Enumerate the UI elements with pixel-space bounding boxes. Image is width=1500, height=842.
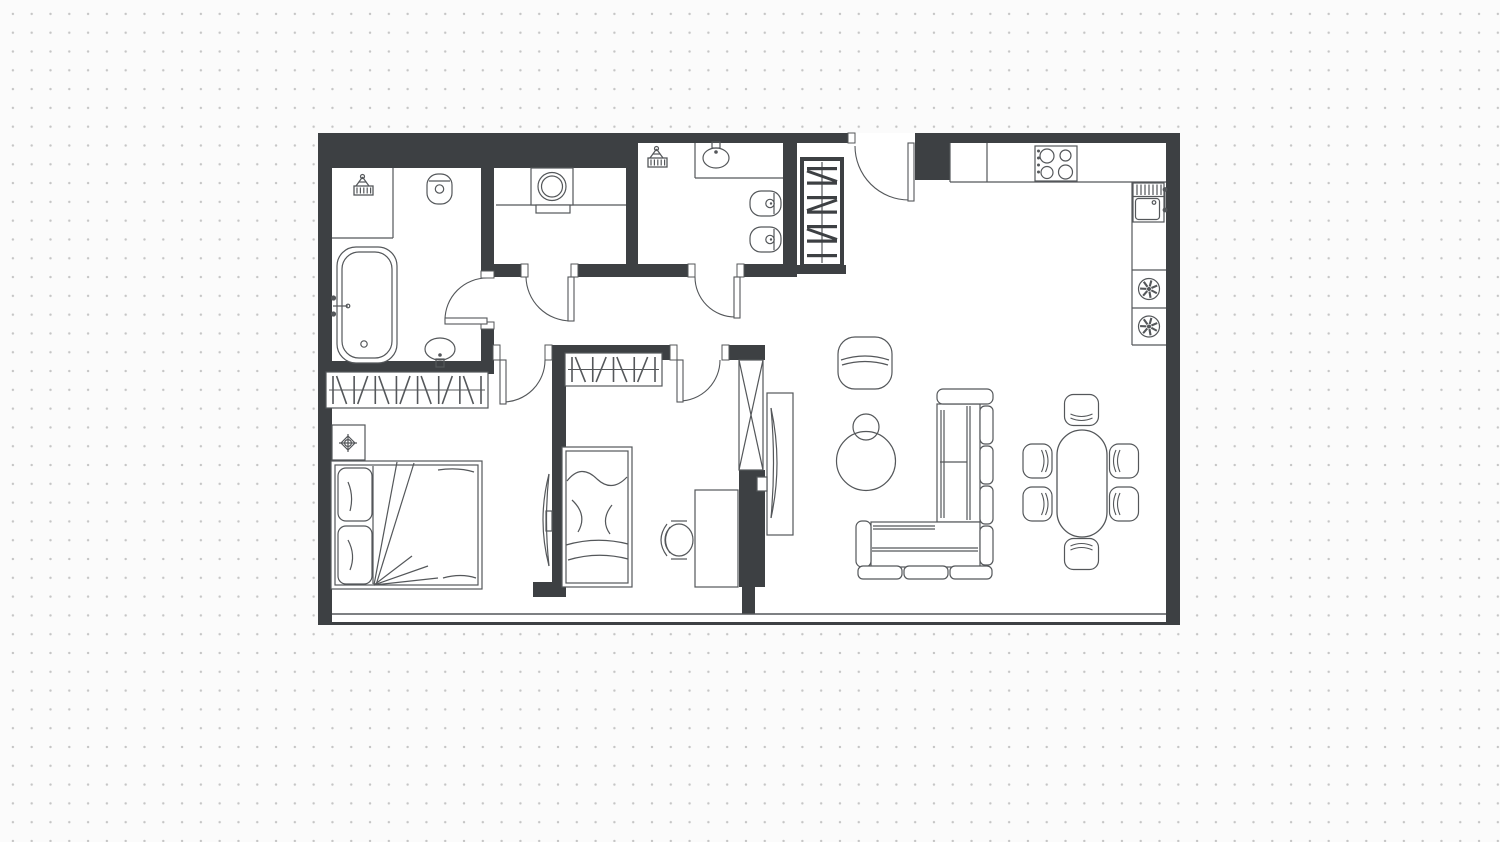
hallway-shoe-rack: [800, 157, 844, 268]
toilet-2: [750, 191, 781, 216]
cooktop: [1035, 146, 1077, 181]
desk: [695, 490, 738, 587]
master-wardrobe: [326, 372, 488, 408]
page-background: [0, 0, 1500, 842]
toilet-1: [427, 174, 452, 204]
double-bed: [331, 461, 482, 589]
washing-machine: [531, 168, 573, 213]
appliance-fan-2: [1139, 316, 1160, 337]
single-bed: [562, 447, 632, 587]
bedroom2-wardrobe: [565, 353, 662, 386]
armchair: [838, 337, 892, 389]
bathtub: [331, 247, 397, 363]
built-in-closet: [739, 360, 763, 470]
appliance-fan-1: [1139, 279, 1160, 300]
kitchen-sink: [1133, 183, 1167, 222]
floor-plan: [0, 0, 1500, 842]
bidet: [750, 227, 781, 252]
nightstand-lamp: [332, 425, 365, 460]
